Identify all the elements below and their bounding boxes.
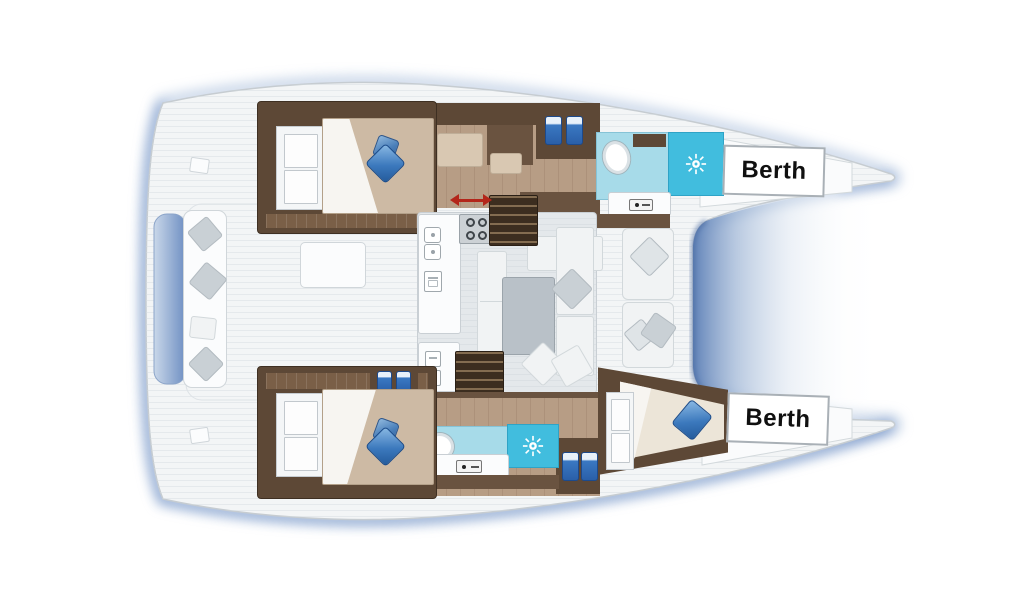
pillow-icon [365,426,406,467]
sun-icon [522,435,544,457]
pillow-icon [365,143,406,184]
door-pane [284,401,318,435]
catamaran-floorplan: Berth Berth [0,0,1024,600]
sliding-door-arrow-icon [450,194,492,206]
upper-bathroom [596,126,722,228]
shower-cubicle [668,132,724,196]
cushion [187,216,224,253]
icon-part [431,250,435,254]
icon-part [450,194,459,206]
cabin-door [606,392,634,470]
icon-part [635,203,639,207]
cockpit-table [300,242,366,288]
salon-table [502,277,555,355]
wardrobe [556,438,600,494]
burner [466,218,475,227]
shelf [633,134,666,147]
faucet-icon [629,199,653,211]
cabinet [417,475,559,489]
bottle-icon [562,452,579,481]
deck-fitting [189,427,210,444]
icon-part [431,233,435,237]
icon-part [429,357,437,359]
icon-part [459,199,483,202]
door-pane [611,399,630,431]
bottle-icon [566,116,583,145]
upper-aft-cabin [257,101,437,234]
bulkhead [432,392,600,398]
icon-part [428,277,438,279]
door-pane [284,170,318,204]
cabin-floor [266,214,428,228]
burner [466,231,475,240]
sun-icon [685,153,707,175]
bottle-icon [581,452,598,481]
sink-icon [424,244,441,260]
cushion [188,261,227,300]
cabin-door [276,393,326,477]
icon-part [462,465,466,469]
icon-part [428,280,438,287]
deck-fitting [189,157,210,174]
icon-part [483,194,492,206]
lower-aft-cabin [257,366,437,499]
faucet-icon [456,460,482,473]
cushion [629,236,670,277]
door-pane [611,433,630,463]
double-bed [322,118,434,214]
door-pane [284,134,318,168]
sink-icon [424,227,441,243]
cabinet [596,214,670,228]
stern-water [154,214,186,384]
galley-counter [418,214,461,334]
cabin-door [276,126,326,210]
oven-icon [424,271,442,292]
burner [478,218,487,227]
forward-bench [622,302,674,368]
wardrobe [536,103,600,159]
shower-cubicle [507,424,559,468]
icon-part [642,204,650,206]
cushion [188,346,225,383]
bottle-icon [545,116,562,145]
companionway-stairs [489,195,538,246]
cushion [189,316,217,341]
lower-forward-cabin [598,364,728,476]
icon-part [471,466,479,468]
seat-cushion [437,133,483,167]
appliance-icon [425,351,441,367]
burner [478,231,487,240]
berth-label-upper: Berth [722,145,825,198]
forward-bench [622,228,674,300]
double-bed [322,389,434,485]
cushion-seam [480,301,504,302]
berth-label-lower: Berth [726,392,830,446]
seat-cushion [490,153,522,174]
sink-counter [608,192,671,216]
cockpit-bench [183,210,227,388]
door-pane [284,437,318,471]
